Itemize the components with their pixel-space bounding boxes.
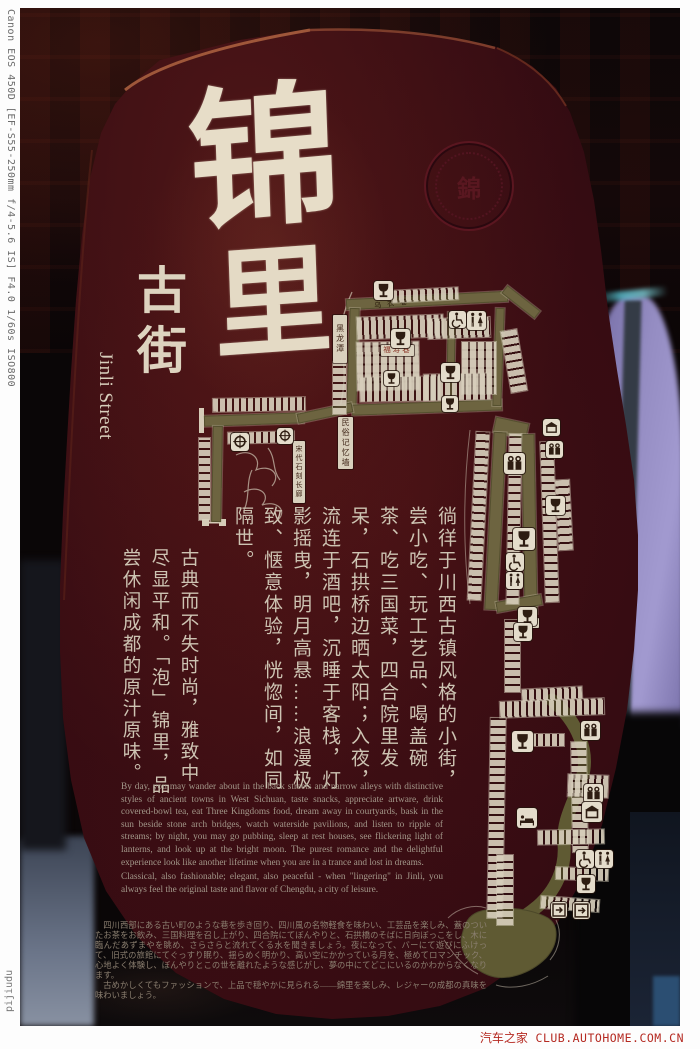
goblet-icon (513, 528, 535, 550)
gift-icon (504, 453, 525, 474)
goblet-icon (391, 329, 410, 348)
photo: 锦 里 古街 Jinli Street 錦 乌衣巷 (20, 8, 680, 1026)
goblet-icon (546, 496, 565, 515)
map-west-lane-south (211, 426, 223, 522)
seal-inner-ring: 錦 (435, 152, 503, 220)
map-buildings (333, 362, 346, 414)
goblet-icon (374, 281, 393, 300)
blurred-foreground-left (20, 836, 94, 1026)
watermark: 汽车之家 CLUB.AUTOHOME.COM.CN (480, 1029, 684, 1046)
wheelchair-icon (576, 850, 594, 868)
map-label-minsu-wall: 民俗记忆墙 (338, 417, 353, 469)
chinese-paragraph-secondary: 古典而不失时尚，雅致中尽显平和。「泡」锦里，品尝休闲成都的原汁原味。 (112, 548, 202, 804)
exit-icon (573, 902, 590, 919)
gift-icon (584, 784, 603, 803)
restroom-icon (506, 572, 523, 589)
goblet-icon (514, 623, 532, 641)
map-buildings (497, 855, 513, 925)
goblet-icon (441, 363, 460, 382)
photo-page: Canon EOS 450D [EF-S55-250mm f/4-5.6 IS]… (0, 0, 700, 1049)
dim-left-edge (20, 560, 66, 850)
scene: 锦 里 古街 Jinli Street 錦 乌衣巷 (20, 8, 680, 1026)
gift-icon (581, 721, 600, 740)
author-credit: pijiudu (4, 970, 15, 1012)
goblet-icon (442, 396, 458, 412)
watermark-cn: 汽车之家 (480, 1031, 528, 1045)
exif-caption: Canon EOS 450D [EF-S55-250mm f/4-5.6 IS]… (5, 9, 16, 387)
wheelchair-icon (449, 311, 466, 328)
shop-icon (543, 419, 560, 436)
restroom-icon (595, 850, 613, 868)
japanese-paragraph-1: 四川西部にある古い町のような巷を歩き回り、四川風の名物軽食を味わい、工芸品を楽し… (95, 921, 487, 981)
title-english: Jinli Street (94, 352, 116, 440)
goblet-icon (512, 731, 533, 752)
title-char-li: 里 (212, 242, 334, 368)
exit-icon (551, 902, 567, 918)
restroom-icon (467, 311, 486, 330)
goblet-icon (384, 371, 399, 386)
drum-icon (231, 433, 249, 451)
map-buildings (199, 438, 210, 520)
watermark-site: CLUB.AUTOHOME.COM.CN (536, 1031, 684, 1045)
map-label-song-corridor: 宋代石刻长廊 (293, 441, 305, 503)
blue-glint-bottom-right (653, 976, 680, 1026)
shop-icon (582, 802, 602, 822)
map-label-heilongtan: 黑龙潭 (333, 315, 347, 363)
map-buildings (213, 397, 305, 412)
drum-icon (277, 428, 293, 444)
chinese-paragraph-main: 徜徉于川西古镇风格的小街，尝小吃、玩工艺品、喝盖碗茶、吃三国菜，四合院里发呆，石… (226, 506, 460, 796)
english-paragraphs: By day, you may wander about in the back… (121, 781, 443, 898)
embossed-seal: 錦 (424, 141, 514, 231)
map-buildings (538, 829, 604, 844)
title-char-jin: 锦 (186, 77, 343, 242)
japanese-paragraphs: 四川西部にある古い町のような巷を歩き回り、四川風の名物軽食を味わい、工芸品を楽し… (95, 921, 487, 1001)
english-paragraph-1: By day, you may wander about in the back… (121, 781, 443, 869)
goblet-icon (577, 875, 595, 893)
english-paragraph-2: Classical, also fashionable; elegant, al… (121, 871, 443, 896)
seal-glyph: 錦 (457, 169, 481, 204)
title-gujie: 古街 (133, 264, 189, 384)
wheelchair-icon (506, 553, 524, 571)
gift-icon (546, 441, 563, 458)
bed-icon (517, 808, 537, 828)
japanese-paragraph-2: 古めかしくてもファッションで、上品で穏やかに見られる——錦里を楽しみ、レジャーの… (95, 981, 487, 1001)
